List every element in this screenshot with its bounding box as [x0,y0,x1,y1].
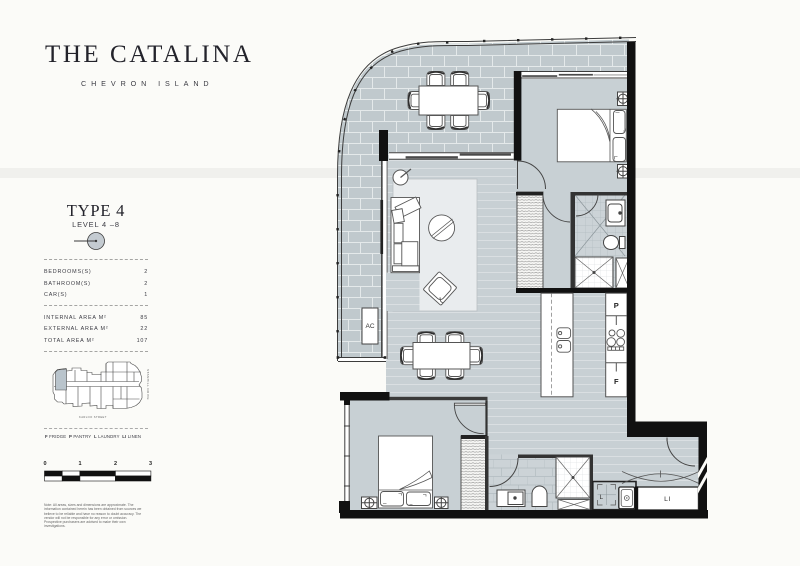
svg-text:STANHILL DRIVE: STANHILL DRIVE [146,369,150,400]
svg-text:3: 3 [149,461,152,467]
svg-text:KARLOO STREET: KARLOO STREET [79,415,107,419]
svg-text:F: F [614,377,619,386]
svg-text:P: P [614,301,619,310]
svg-text:2: 2 [114,461,117,467]
svg-text:AC: AC [365,323,374,330]
svg-text:LI: LI [664,496,671,503]
svg-text:1: 1 [78,461,81,467]
svg-text:0: 0 [43,461,46,467]
svg-text:L: L [600,494,604,501]
